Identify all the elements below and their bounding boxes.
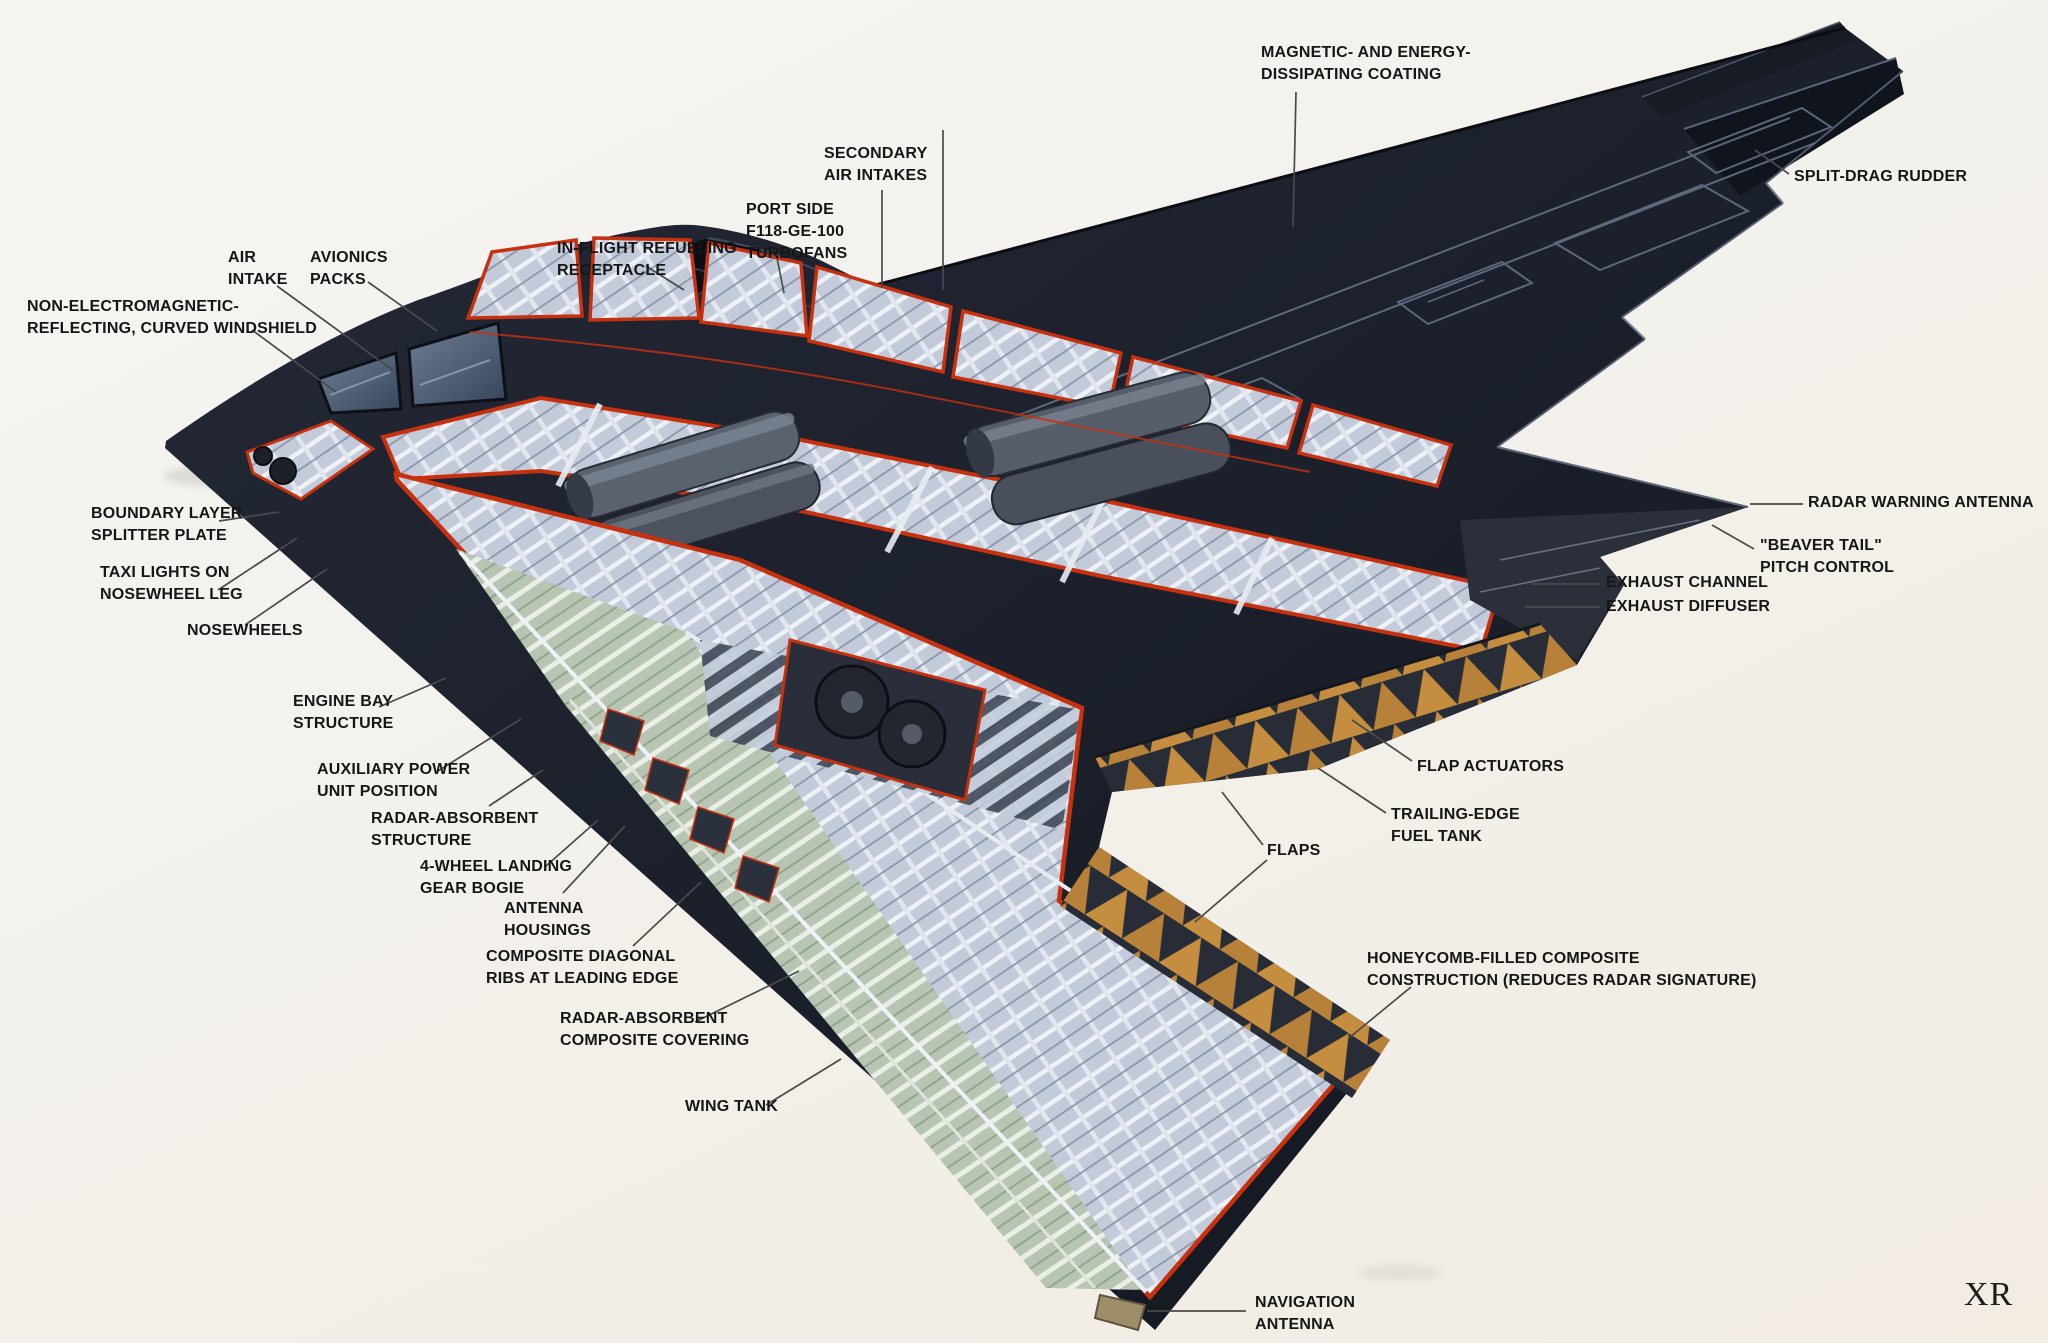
label-avionics-packs: AVIONICS PACKS [310,247,388,291]
label-composite-diagonal-ribs: COMPOSITE DIAGONAL RIBS AT LEADING EDGE [486,946,678,990]
label-line: ENGINE BAY [293,691,393,713]
label-line: CONSTRUCTION (REDUCES RADAR SIGNATURE) [1367,970,1757,992]
nosewheel [254,447,272,465]
b2-cutaway-diagram: MAGNETIC- AND ENERGY- DISSIPATING COATIN… [0,0,2048,1343]
label-line: NAVIGATION [1255,1292,1355,1314]
label-line: RADAR WARNING ANTENNA [1808,492,2034,514]
label-nosewheels: NOSEWHEELS [187,620,303,642]
label-line: HONEYCOMB-FILLED COMPOSITE [1367,948,1757,970]
label-line: COMPOSITE COVERING [560,1030,749,1052]
label-windshield: NON-ELECTROMAGNETIC- REFLECTING, CURVED … [27,296,317,340]
label-line: ANTENNA [1255,1314,1355,1336]
label-line: IN-FLIGHT REFUELING [557,238,737,260]
leader-trailing-fuel-tank [1318,768,1386,813]
label-line: DISSIPATING COATING [1261,64,1471,86]
label-line: FLAPS [1267,840,1320,862]
label-line: FLAP ACTUATORS [1417,756,1564,778]
leader-flaps-2 [1195,860,1267,922]
label-line: 4-WHEEL LANDING [420,856,572,878]
label-line: F118-GE-100 [746,221,847,243]
leader-nosewheels [245,569,327,625]
label-auxiliary-power-unit: AUXILIARY POWER UNIT POSITION [317,759,470,803]
label-exhaust-diffuser: EXHAUST DIFFUSER [1606,596,1770,618]
label-line: SPLIT-DRAG RUDDER [1794,166,1967,188]
label-engine-bay-structure: ENGINE BAY STRUCTURE [293,691,393,735]
label-line: "BEAVER TAIL" [1760,535,1894,557]
label-line: RECEPTACLE [557,260,737,282]
label-line: HOUSINGS [504,920,591,942]
label-line: RADAR-ABSORBENT [560,1008,749,1030]
label-inflight-refueling: IN-FLIGHT REFUELING RECEPTACLE [557,238,737,282]
label-line: UNIT POSITION [317,781,470,803]
label-line: AIR INTAKES [824,165,927,187]
label-line: COMPOSITE DIAGONAL [486,946,678,968]
label-line: RIBS AT LEADING EDGE [486,968,678,990]
leader-flaps-1 [1222,792,1263,845]
label-wing-tank: WING TANK [685,1096,778,1118]
leader-antenna-housings [563,826,625,893]
label-flap-actuators: FLAP ACTUATORS [1417,756,1564,778]
nosewheel [270,458,296,484]
label-line: AUXILIARY POWER [317,759,470,781]
label-line: NOSEWHEEL LEG [100,584,243,606]
leader-beaver-tail [1712,525,1754,549]
label-line: FUEL TANK [1391,826,1520,848]
label-line: GEAR BOGIE [420,878,572,900]
leader-radar-structure [489,770,543,806]
label-line: SECONDARY [824,143,927,165]
label-line: PORT SIDE [746,199,847,221]
label-line: BOUNDARY LAYER [91,503,243,525]
label-line: PACKS [310,269,388,291]
label-line: AIR [228,247,288,269]
label-line: TAXI LIGHTS ON [100,562,243,584]
artist-signature: XR [1964,1276,2013,1314]
leader-honeycomb [1349,987,1411,1038]
label-air-intake: AIR INTAKE [228,247,288,291]
label-line: STRUCTURE [371,830,538,852]
label-magnetic-coating: MAGNETIC- AND ENERGY- DISSIPATING COATIN… [1261,42,1471,86]
label-line: PITCH CONTROL [1760,557,1894,579]
label-line: NOSEWHEELS [187,620,303,642]
label-radar-absorbent-structure: RADAR-ABSORBENT STRUCTURE [371,808,538,852]
label-boundary-layer-splitter: BOUNDARY LAYER SPLITTER PLATE [91,503,243,547]
label-split-drag-rudder: SPLIT-DRAG RUDDER [1794,166,1967,188]
label-radar-absorbent-covering: RADAR-ABSORBENT COMPOSITE COVERING [560,1008,749,1052]
label-taxi-lights: TAXI LIGHTS ON NOSEWHEEL LEG [100,562,243,606]
label-line: EXHAUST CHANNEL [1606,572,1768,594]
label-line: RADAR-ABSORBENT [371,808,538,830]
label-line: INTAKE [228,269,288,291]
label-exhaust-channel: EXHAUST CHANNEL [1606,572,1768,594]
label-line: TURBOFANS [746,243,847,265]
label-line: SPLITTER PLATE [91,525,243,547]
label-line: AVIONICS [310,247,388,269]
label-line: STRUCTURE [293,713,393,735]
label-line: REFLECTING, CURVED WINDSHIELD [27,318,317,340]
label-secondary-air-intakes: SECONDARY AIR INTAKES [824,143,927,187]
label-antenna-housings: ANTENNA HOUSINGS [504,898,591,942]
label-line: WING TANK [685,1096,778,1118]
label-line: EXHAUST DIFFUSER [1606,596,1770,618]
label-beaver-tail: "BEAVER TAIL" PITCH CONTROL [1760,535,1894,579]
label-line: NON-ELECTROMAGNETIC- [27,296,317,318]
label-radar-warning-antenna: RADAR WARNING ANTENNA [1808,492,2034,514]
label-landing-gear-bogie: 4-WHEEL LANDING GEAR BOGIE [420,856,572,900]
label-trailing-edge-fuel-tank: TRAILING-EDGE FUEL TANK [1391,804,1520,848]
label-flaps: FLAPS [1267,840,1320,862]
label-port-side-turbofans: PORT SIDE F118-GE-100 TURBOFANS [746,199,847,265]
label-line: TRAILING-EDGE [1391,804,1520,826]
label-line: MAGNETIC- AND ENERGY- [1261,42,1471,64]
label-line: ANTENNA [504,898,591,920]
label-honeycomb-construction: HONEYCOMB-FILLED COMPOSITE CONSTRUCTION … [1367,948,1757,992]
aircraft-artwork [0,0,2048,1343]
label-navigation-antenna: NAVIGATION ANTENNA [1255,1292,1355,1336]
